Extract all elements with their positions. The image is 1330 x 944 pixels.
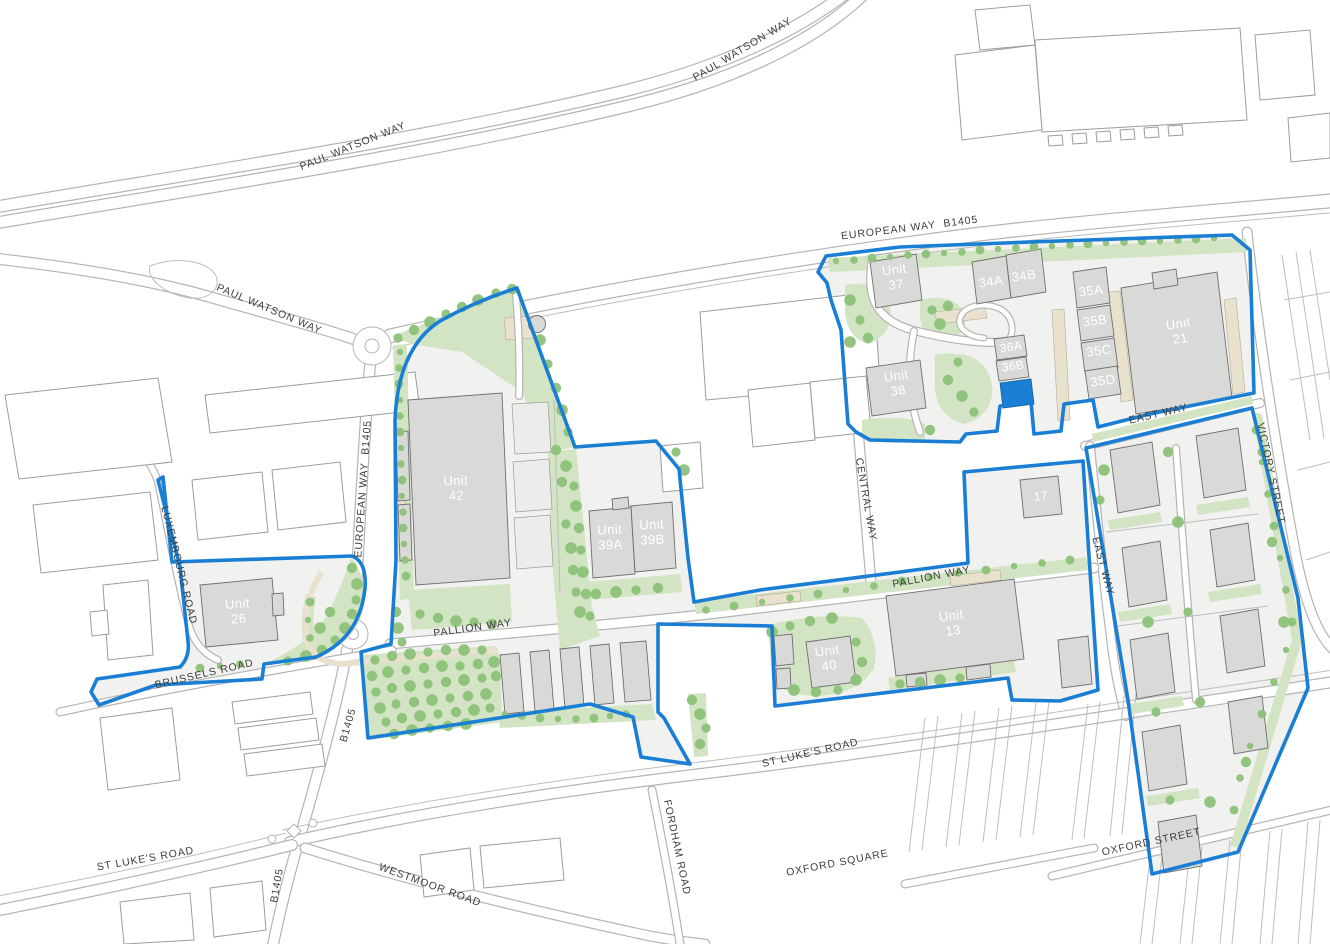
unit-39a-label: Unit39A <box>597 521 623 552</box>
unit-17-label: 17 <box>1033 488 1049 504</box>
unit-39b-label: Unit39B <box>639 516 665 547</box>
site-plan-map: PAUL WATSON WAY PAUL WATSON WAY PAUL WAT… <box>0 0 1330 944</box>
